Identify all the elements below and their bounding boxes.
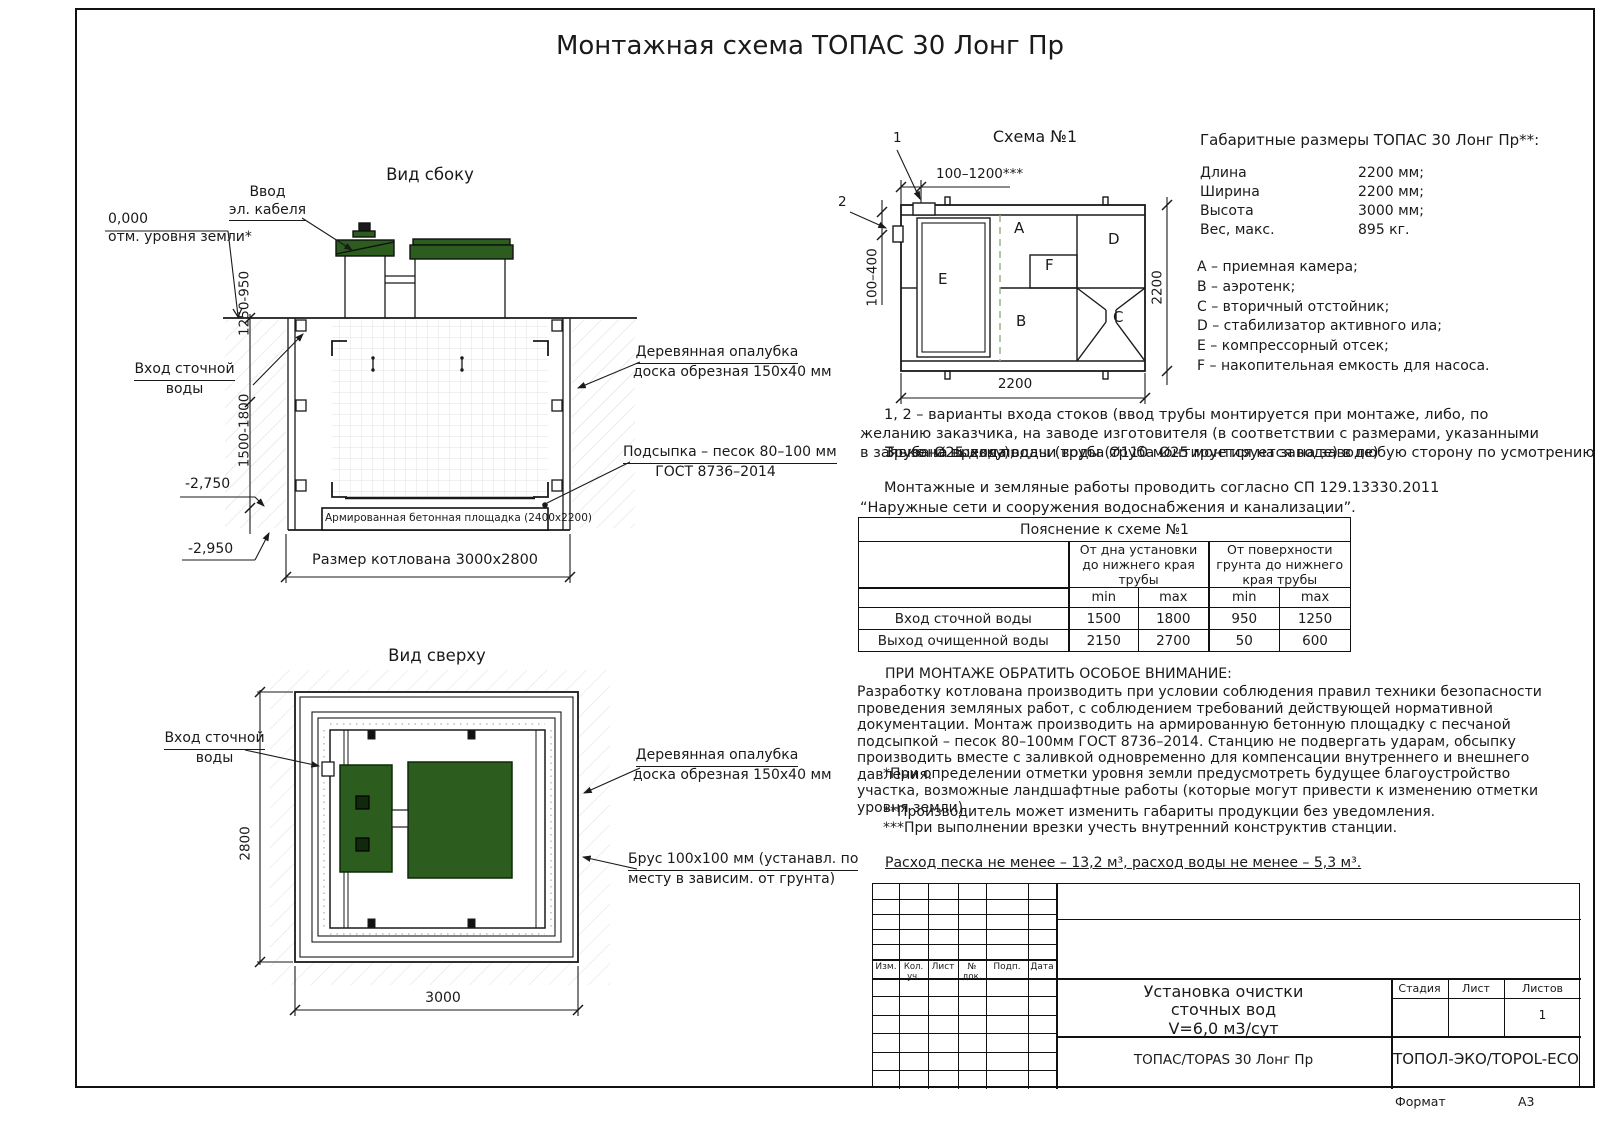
expl-table-title: Пояснение к схеме №1 [859,518,1351,542]
expl-row-label: Вход сточной воды [859,608,1069,630]
model-name: ТОПАС/TOPAS 30 Лонг Пр [1056,1052,1391,1068]
top-dim-length: 3000 [398,990,488,1008]
chamber-b-label: B [1016,312,1026,331]
drawing-sheet: Монтажная схема ТОПАС 30 Лонг Пр Вид сбо… [0,0,1600,1131]
grid-line [873,959,1057,961]
top-formwork-line1: Деревянная опалубка [636,747,799,767]
schema-marker-2: 2 [838,194,847,211]
grid-line [873,914,1057,915]
title-block: Изм. Кол. уч. Лист № док. Подп. Дата Уст… [872,883,1580,1088]
overlap-note-b: Труба Ø25 для подачи воды (труба Ø25 мон… [885,444,1379,462]
dim-row-label: Вес, макс. [1200,222,1275,240]
chamber-f-label: F [1045,256,1054,275]
level-2950-label: -2,950 [188,541,233,559]
expl-cell: 1500 [1069,608,1139,630]
grid-line [873,1070,1057,1071]
top-inlet-label: Вход сточной воды [142,730,287,767]
overall-heading: Габаритные размеры ТОПАС 30 Лонг Пр**: [1200,131,1539,150]
legend-item: C – вторичный отстойник; [1197,299,1389,317]
grid-line [1056,919,1581,920]
grid-line [1056,978,1581,980]
expl-min-2: min [1209,588,1280,608]
schema-marker-1: 1 [893,130,902,147]
schema-dim-top: 100–1200*** [936,166,1023,183]
expl-group-2: От поверхности грунта до нижнего края тр… [1209,542,1351,588]
top-inlet-line1: Вход сточной [164,730,264,750]
stage-header: Стадия [1391,982,1448,995]
consumption-note: Расход песка не менее – 13,2 м³, расход … [885,855,1361,873]
bedding-line1: Подсыпка – песок 80–100 мм [623,444,837,464]
zero-mark-value: 0,000 [108,211,148,227]
slab-label: Армированная бетонная площадка (2400х220… [325,512,547,525]
format-label: Формат [1395,1094,1446,1110]
dim-row-value: 895 кг. [1358,222,1409,240]
page-title: Монтажная схема ТОПАС 30 Лонг Пр [480,30,1140,63]
top-formwork-line2: доска обрезная 150х40 мм [633,767,832,783]
schema-title: Схема №1 [975,127,1095,147]
top-dim-width: 2800 [238,808,255,878]
expl-max-1: max [1139,588,1209,608]
schema-dim-bottom: 2200 [975,376,1055,393]
dim-row-label: Длина [1200,165,1247,183]
schema-dim-right: 2200 [1150,252,1167,322]
doc-title-line3: V=6,0 м3/сут [1168,1019,1278,1038]
zero-mark-label: 0,000 отм. уровня земли* [108,211,252,246]
rev-col-kol: Кол. уч. [899,962,928,982]
level-2750-label: -2,750 [185,476,230,494]
doc-title-line1: Установка очистки [1144,982,1304,1001]
chamber-d-label: D [1108,230,1120,249]
beam-line2: месту в зависим. от грунта) [628,871,835,887]
dim-row-value: 3000 мм; [1358,203,1424,221]
zero-mark-sub: отм. уровня земли* [108,229,252,245]
doc-title: Установка очистки сточных вод V=6,0 м3/с… [1056,983,1391,1038]
grid-line [1391,998,1581,999]
dim-row-value: 2200 мм; [1358,184,1424,202]
rev-col-doc: № док. [958,962,986,982]
expl-max-2: max [1280,588,1351,608]
rev-col-list: Лист [928,962,958,972]
chamber-e-label: E [938,270,947,289]
side-inlet-label: Вход сточной воды [112,361,257,398]
sheets-header: Листов [1504,982,1581,995]
legend-item: A – приемная камера; [1197,259,1358,277]
expl-cell: 1250 [1280,608,1351,630]
sheet-header: Лист [1448,982,1504,995]
grid-line [873,1033,1057,1034]
warning-heading: ПРИ МОНТАЖЕ ОБРАТИТЬ ОСОБОЕ ВНИМАНИЕ: [885,666,1232,684]
grid-line [873,929,1057,930]
side-tank [332,256,548,498]
rev-col-podp: Подп. [986,962,1028,972]
expl-cell: 50 [1209,630,1280,652]
expl-group-1: От дна установки до нижнего края трубы [1069,542,1209,588]
dim-upper-label: 1250-950 [237,263,254,343]
top-inlet-line2: воды [196,750,234,766]
rev-col-data: Дата [1028,962,1056,972]
warning-note-3: ***При выполнении врезки учесть внутренн… [883,820,1397,838]
expl-cell: 950 [1209,608,1280,630]
expl-cell: 2700 [1139,630,1209,652]
expl-cell: 600 [1280,630,1351,652]
chamber-a-label: A [1014,219,1024,238]
explanation-table: Пояснение к схеме №1 От дна установки до… [858,517,1351,652]
chamber-c-label: C [1113,308,1123,327]
grid-line [873,944,1057,945]
side-formwork-label: Деревянная опалубка доска обрезная 150х4… [633,344,801,381]
side-lids [336,223,513,259]
grid-line [873,1052,1057,1053]
dim-row-label: Ширина [1200,184,1260,202]
warning-note-2: **Производитель может изменить габариты … [883,804,1435,822]
grid-line [873,996,1057,997]
schema-leaders [850,150,920,228]
expl-cell: 1800 [1139,608,1209,630]
side-inlet-line1: Вход сточной [134,361,234,381]
cable-entry-line1: Ввод [249,184,285,200]
expl-cell: 2150 [1069,630,1139,652]
dim-lower-label: 1500-1800 [237,390,254,470]
bedding-label: Подсыпка – песок 80–100 мм ГОСТ 8736–201… [623,444,808,481]
company-name: ТОПОЛ-ЭКО/TOPOL-ECO [1391,1050,1581,1068]
works-note: Монтажные и земляные работы проводить со… [860,478,1525,518]
expl-empty-cell [859,542,1069,588]
legend-item: F – накопительная емкость для насоса. [1197,358,1490,376]
side-formwork-line1: Деревянная опалубка [636,344,799,364]
beam-label: Брус 100х100 мм (устанавл. по месту в за… [628,851,828,888]
dim-row-value: 2200 мм; [1358,165,1424,183]
expl-row-label: Выход очищенной воды [859,630,1069,652]
legend-item: B – аэротенк; [1197,279,1295,297]
sheets-value: 1 [1504,1008,1581,1022]
expl-min-1: min [1069,588,1139,608]
beam-line1: Брус 100х100 мм (устанавл. по [628,851,858,871]
side-formwork-line2: доска обрезная 150х40 мм [633,364,832,380]
top-green-units [340,762,512,878]
bedding-line2: ГОСТ 8736–2014 [655,464,776,480]
doc-title-line2: сточных вод [1171,1000,1276,1019]
side-inlet-line2: воды [166,381,204,397]
rev-col-izm: Изм. [873,962,899,972]
grid-line [873,1015,1057,1016]
pit-size-label: Размер котлована 3000х2800 [312,551,522,569]
top-view-drawing [235,645,665,1030]
schema-dim-left: 100–400 [865,242,882,312]
expl-empty-cell [859,588,1069,608]
top-formwork-label: Деревянная опалубка доска обрезная 150х4… [633,747,801,784]
legend-item: E – компрессорный отсек; [1197,338,1389,356]
grid-line [873,899,1057,900]
format-value: А3 [1518,1094,1535,1110]
legend-item: D – стабилизатор активного ила; [1197,318,1442,336]
dim-row-label: Высота [1200,203,1254,221]
